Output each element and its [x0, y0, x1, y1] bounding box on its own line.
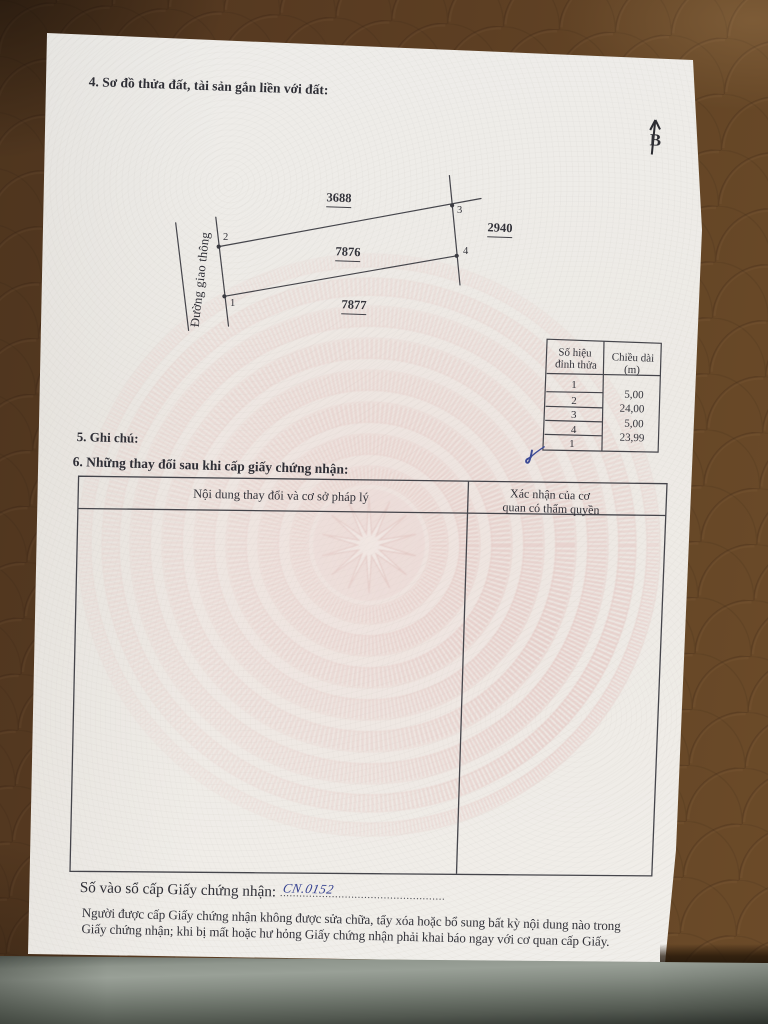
svg-text:B: B: [649, 130, 661, 150]
svg-text:Đường giao thông: Đường giao thông: [188, 231, 213, 328]
